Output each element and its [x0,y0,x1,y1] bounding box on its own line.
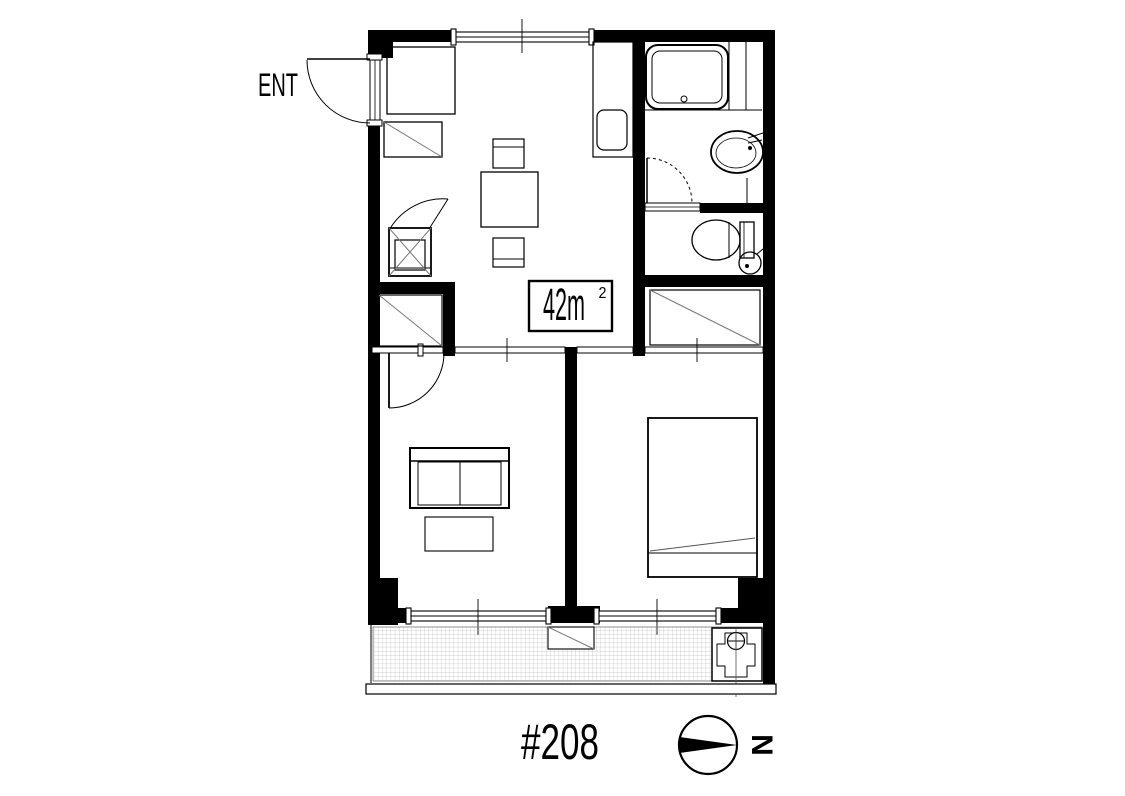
closet-right [650,290,760,345]
kitchen-counter [593,42,633,157]
bathtub [646,45,728,109]
toilet-room [692,220,763,274]
bed [648,418,757,577]
unit-number-label: #208 [521,714,599,770]
closet-left [379,295,442,346]
balcony [366,625,776,697]
dining-table [481,172,538,227]
compass-needle-icon [680,737,738,753]
dining-chair-bottom [493,238,524,267]
dining-chair-top [493,139,524,168]
kitchen-sink [597,110,627,150]
outer-walls [368,30,775,692]
storage-box [389,199,448,276]
dining-set [481,139,538,267]
ac-outdoor-unit [548,627,594,649]
washbasin [711,131,763,173]
entrance-label: ENT [258,67,298,103]
area-label: 42m 2 [543,279,607,330]
entrance-door [307,54,382,126]
shoe-closet [387,47,455,114]
bathroom [645,42,763,211]
entrance [307,47,455,276]
room-right [648,418,757,577]
compass: N [679,716,778,774]
room-left [389,353,509,551]
area-label-box: 42m 2 [529,279,612,331]
bathroom-door [645,158,700,211]
sofa [410,448,509,508]
coffee-table [425,517,493,551]
room-left-door [389,353,444,408]
window-top [451,19,594,53]
entrance-counter [384,122,442,157]
floor-plan-page: ENT 42m 2 #208 N [0,0,1125,796]
corner-hand-basin [739,249,763,274]
compass-north-label: N [745,734,778,756]
floor-plan-drawing: ENT 42m 2 #208 N [0,0,1125,796]
balcony-railing [366,684,776,694]
